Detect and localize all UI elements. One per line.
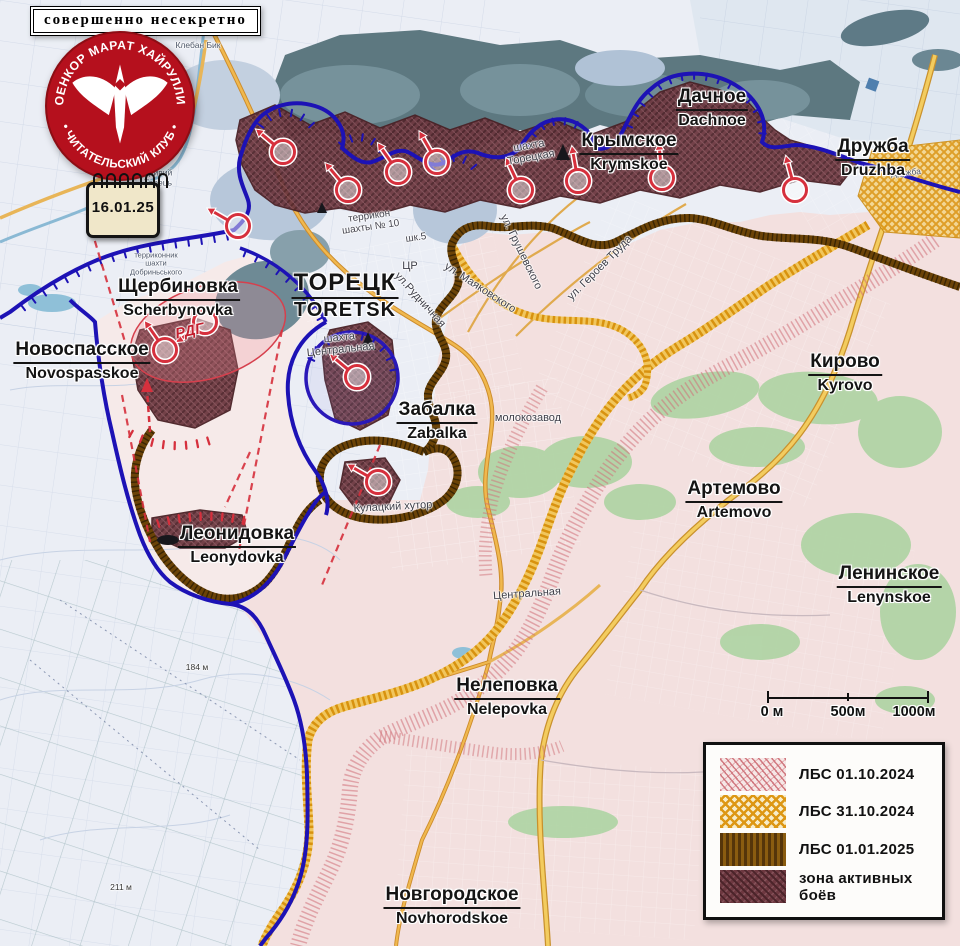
label-tsr: ЦР [402,260,417,272]
place-label-leonydovka: ЛеонидовкаLeonydovka [178,524,296,566]
label-elev-211: 211 м [110,883,132,893]
warcor-club-logo: ВОЕНКОР МАРАТ ХАЙРУЛЛИН • ЧИТАТЕЛЬСКИЙ К… [44,30,196,182]
legend-row: зона активных боёв [720,870,928,904]
legend-swatch-pink-hatch [720,758,786,791]
war-map-screenshot: ЩербиновкаScherbynovka НовоспасскоеNovos… [0,0,960,946]
label-elev-184: 184 м [186,663,208,673]
legend-row: ЛБС 31.10.2024 [720,795,928,828]
legend-row: ЛБС 01.10.2024 [720,758,928,791]
place-label-novhorodskoe: НовгородскоеNovhorodskoe [383,885,520,927]
place-label-shcherbynovka: ЩербиновкаScherbynovka [116,277,240,319]
place-label-druzhba: ДружбаDruzhba [835,137,910,179]
legend-swatch-maroon-hatch [720,870,786,903]
scale-bar-line [762,688,938,704]
place-label-nelepovka: НелеповкаNelepovka [454,676,560,718]
place-label-zabalka: ЗабалкаZabalka [397,400,478,442]
place-label-artemovo: АртемовоArtemovo [685,479,782,521]
map-legend: ЛБС 01.10.2024 ЛБС 31.10.2024 ЛБС 01.01.… [703,742,945,920]
scale-bar: 0 м 500м 1000м [762,688,938,728]
place-label-krymskoe: КрымскоеKrymskoe [579,131,678,173]
place-label-dachnoe: ДачноеDachnoe [676,87,748,129]
legend-row: ЛБС 01.01.2025 [720,833,928,866]
legend-swatch-orange-cross [720,795,786,828]
place-label-toretsk: ТОРЕЦКTORETSK [292,270,399,322]
place-label-lenynskoe: ЛенинскоеLenynskoe [837,564,942,606]
place-label-novospasskoe: НовоспасскоеNovospasskoe [13,340,150,382]
calendar-rings-icon [93,173,168,188]
scale-tick-0: 0 м [761,704,784,720]
legend-swatch-brown-stripes [720,833,786,866]
calendar-date: 16.01.25 [89,199,157,216]
label-terrikonnik: терриконник шахти Добриньського [130,251,182,276]
scale-tick-1000: 1000м [893,704,936,720]
date-calendar: 16.01.25 [86,182,160,238]
scale-tick-500: 500м [831,704,866,720]
place-label-kyrovo: КировоKyrovo [808,352,882,394]
label-molokozavod: молокозавод [495,412,561,424]
